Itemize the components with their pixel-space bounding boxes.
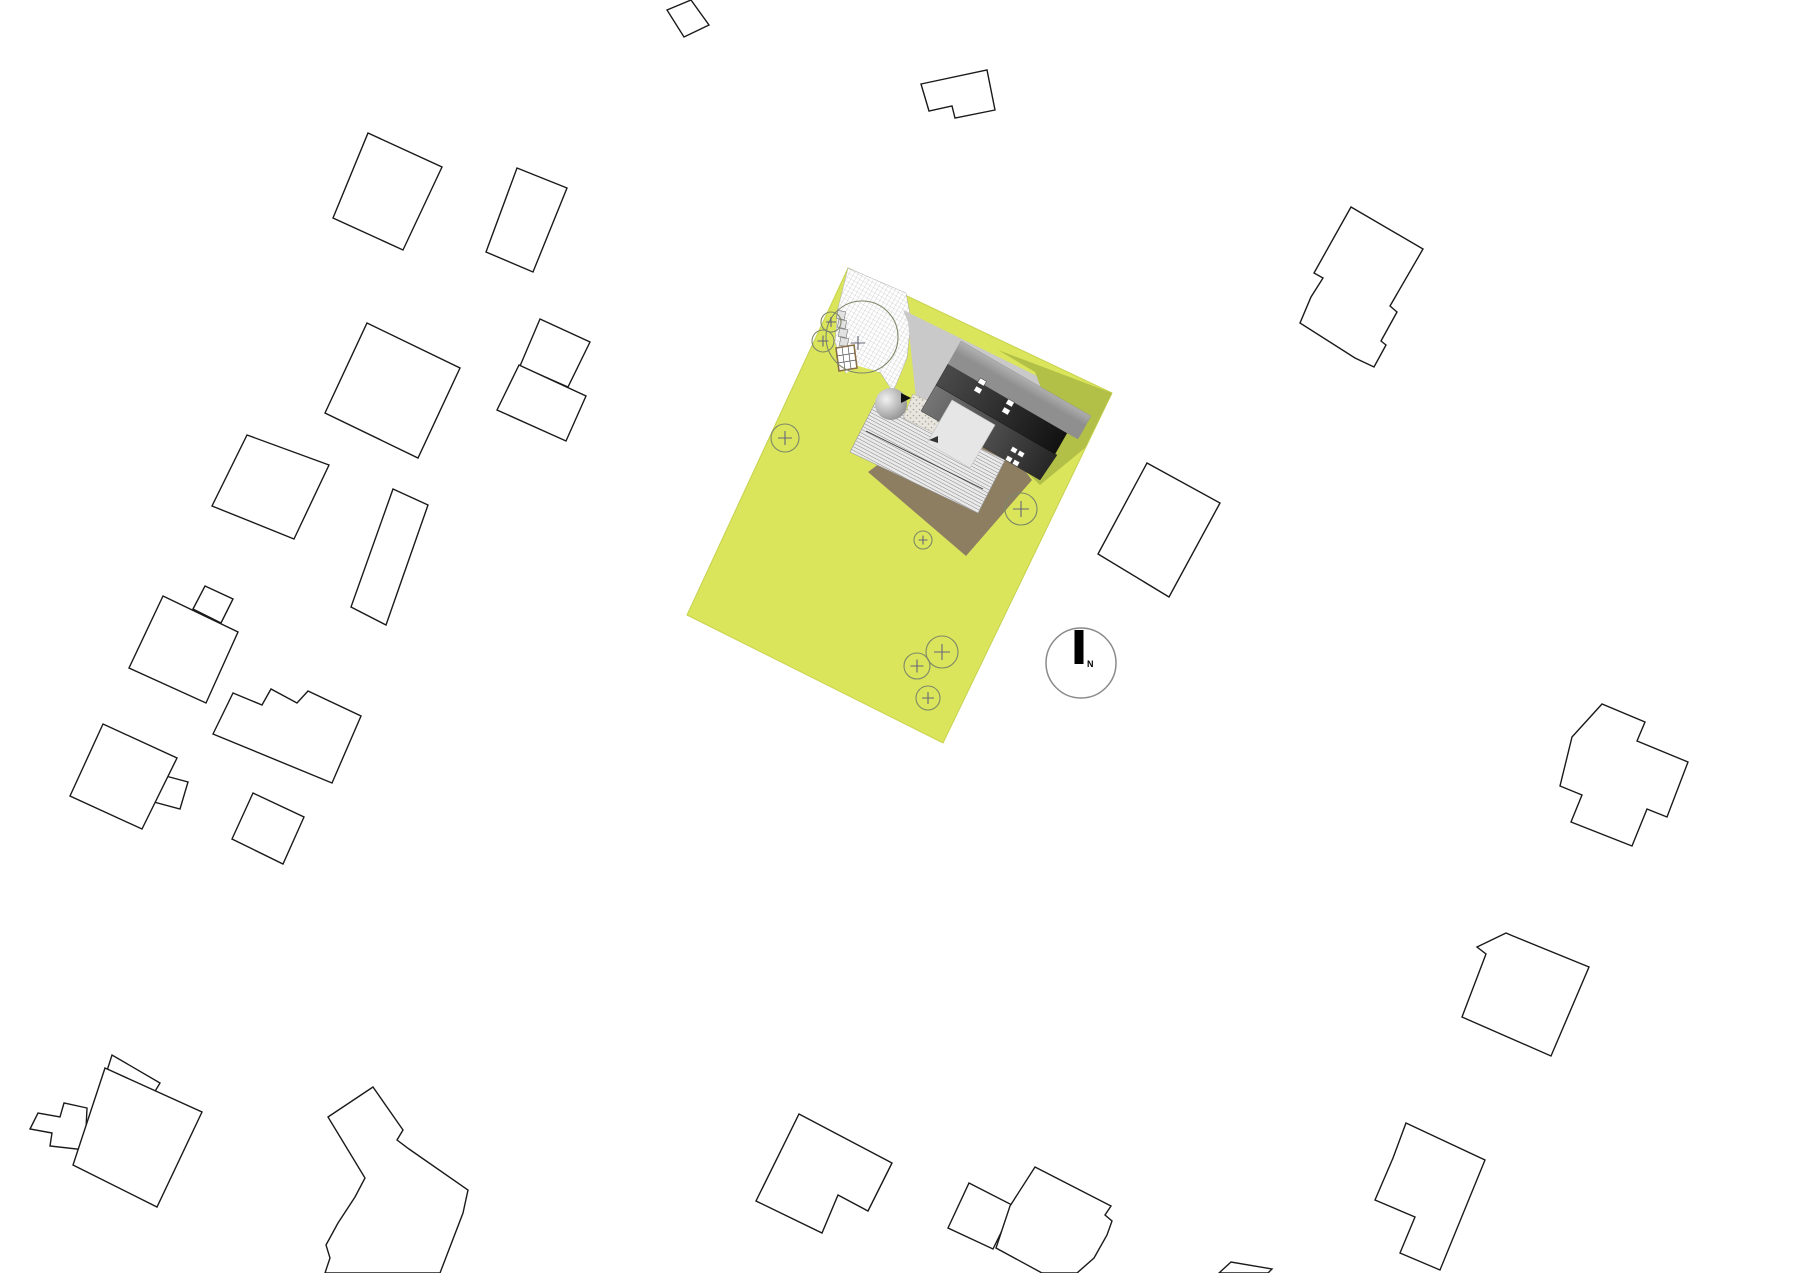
- path-tile: [839, 337, 848, 346]
- path-tile: [837, 319, 846, 328]
- entry-canopy-dome: [875, 388, 907, 420]
- garden-shed: [836, 345, 857, 371]
- north-label: N: [1087, 659, 1094, 669]
- site-plan-canvas: N: [0, 0, 1800, 1273]
- path-tile: [838, 328, 847, 337]
- site-plan-page: N: [0, 0, 1800, 1273]
- north-arrow-needle: [1075, 630, 1084, 664]
